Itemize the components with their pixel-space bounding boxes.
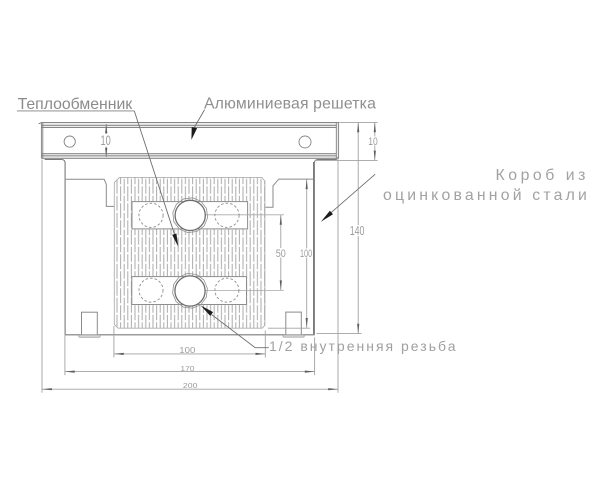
- svg-text:1/2 внутренняя резьба: 1/2 внутренняя резьба: [269, 338, 457, 354]
- svg-text:Алюминиевая решетка: Алюминиевая решетка: [204, 95, 376, 112]
- svg-text:200: 200: [183, 382, 198, 390]
- svg-text:100: 100: [179, 346, 195, 355]
- svg-text:140: 140: [350, 225, 365, 239]
- svg-text:10: 10: [101, 134, 111, 148]
- svg-text:10: 10: [368, 136, 378, 148]
- svg-text:100: 100: [300, 248, 312, 260]
- svg-text:оцинкованной стали: оцинкованной стали: [383, 187, 590, 204]
- svg-text:50: 50: [276, 248, 286, 260]
- svg-text:Короб из: Короб из: [496, 167, 589, 184]
- svg-text:170: 170: [180, 364, 195, 373]
